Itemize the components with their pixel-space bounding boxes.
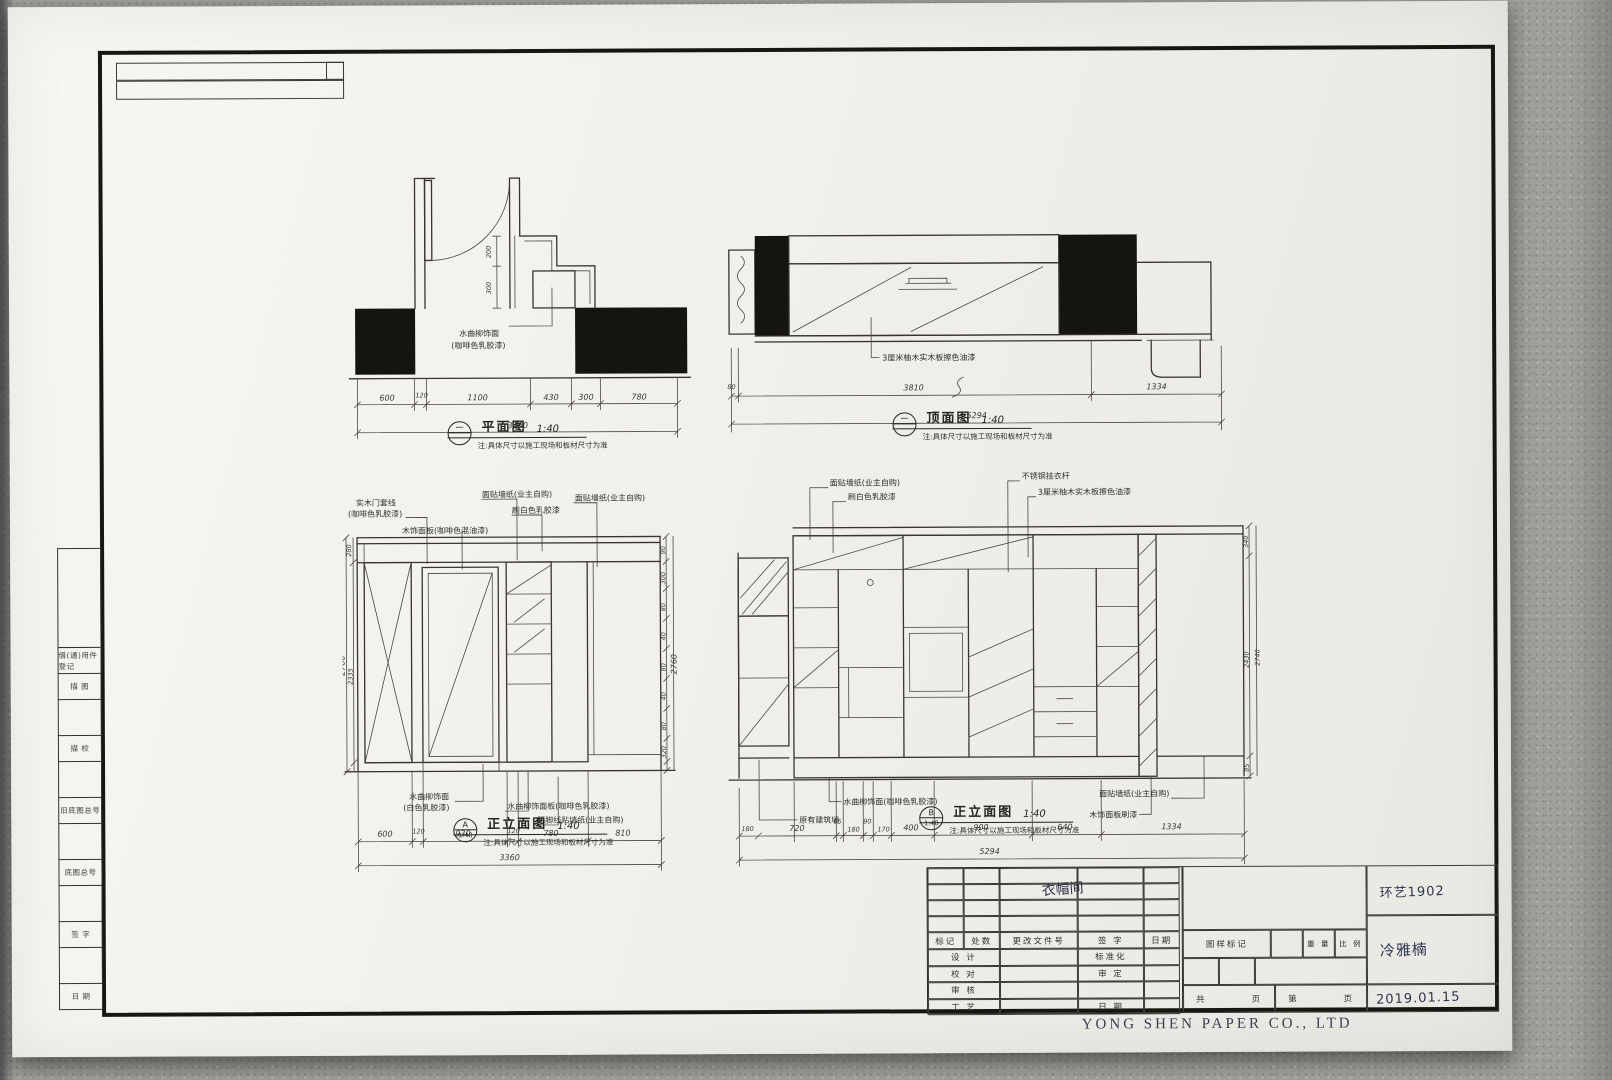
table-cell: 日 期 — [1078, 998, 1144, 1015]
elev-b-dim: 400 — [903, 823, 918, 832]
table-cell — [1183, 958, 1219, 985]
ceiling-dim: 80 — [727, 383, 735, 391]
table-cell — [964, 916, 1000, 932]
table-cell — [1144, 948, 1180, 965]
ceiling-material-label: 3厘米柚木实木板擦色油漆 — [882, 352, 975, 362]
revision-strip-divider — [326, 62, 344, 80]
table-cell — [1078, 899, 1144, 915]
elev-b-dim: 90 — [863, 818, 871, 826]
elevation-b-scale: 1:40 — [1023, 809, 1046, 820]
table-cell — [1271, 930, 1303, 958]
elevation-b-note: 注:具体尺寸以施工现场和板材尺寸为准 — [949, 825, 1079, 837]
table-cell — [1144, 965, 1180, 982]
elev-a-vdim: 90 — [659, 546, 667, 554]
handwritten-author: 冷雅楠 — [1379, 938, 1428, 961]
ceiling-reference-bubble: 一 — [892, 412, 916, 436]
table-cell: 设 计 — [928, 949, 1000, 966]
handwritten-room-name: 衣帽间 — [1041, 877, 1084, 900]
elev-b-vdim: 85 — [1243, 764, 1251, 772]
elev-a-label: 面贴墙纸(业主自购) — [482, 489, 552, 499]
table-cell: 校 对 — [928, 965, 1000, 982]
elev-b-label: 木饰面板刷漆 — [1089, 809, 1137, 819]
table-cell — [1078, 981, 1144, 998]
elev-b-vdim: 340 — [1242, 535, 1250, 547]
pages-label: 第 — [1288, 993, 1299, 1005]
ceiling-dim: 1334 — [1146, 382, 1166, 391]
table-cell: 审 定 — [1078, 965, 1144, 982]
elev-a-vdim: 2335 — [347, 668, 355, 685]
margin-empty-box — [57, 548, 101, 648]
table-cell — [1000, 916, 1078, 932]
bubble-sub — [449, 433, 471, 444]
plan-dim: 120 — [415, 391, 427, 399]
table-cell — [1144, 998, 1180, 1015]
elev-b-dim: 170 — [877, 825, 889, 833]
paper-sheet: 借(通)用件登记 描 图 描 校 旧底图总号 底图总号 签 字 日 期 200 … — [8, 1, 1513, 1058]
elev-b-dim: 1334 — [1161, 822, 1181, 831]
drawing-mark-label: 图样标记 — [1183, 930, 1271, 958]
table-cell — [1255, 957, 1367, 984]
margin-empty-box — [58, 762, 102, 798]
elev-b-label: 面贴墙纸(业主自购) — [1099, 788, 1169, 798]
table-cell — [1143, 867, 1179, 883]
elev-a-label: 实木门套线 — [356, 498, 396, 508]
elev-a-vdim: 280 — [345, 544, 353, 556]
table-cell — [1000, 900, 1078, 916]
pages-no-cell: 第 页 — [1275, 984, 1367, 1012]
plan-dim: 430 — [543, 393, 558, 402]
table-cell — [1000, 998, 1078, 1015]
elev-a-vdim: 80 — [660, 663, 668, 671]
margin-label: 签 字 — [59, 922, 103, 948]
paper-manufacturer-text: YONG SHEN PAPER CO., LTD — [812, 1014, 1612, 1035]
margin-label: 旧底图总号 — [58, 798, 102, 824]
elev-b-label: 3厘米柚木实木板擦色油漆 — [1038, 486, 1131, 496]
plan-dim: 780 — [631, 392, 646, 401]
table-cell: 标准化 — [1078, 948, 1144, 965]
date-cell: 2019.01.15 — [1367, 984, 1499, 1013]
plan-note: 注:具体尺寸以施工现场和板材尺寸为准 — [478, 440, 608, 452]
elev-a-vdim: 80 — [660, 722, 668, 730]
table-cell — [928, 916, 964, 932]
left-margin-strip: 借(通)用件登记 描 图 描 校 旧底图总号 底图总号 签 字 日 期 — [57, 548, 103, 1010]
pages-label: 共 — [1196, 993, 1207, 1005]
table-cell — [1000, 949, 1078, 966]
table-cell: 工 艺 — [928, 998, 1000, 1015]
elev-a-label: 木饰面板(咖啡色混油漆) — [402, 525, 488, 535]
ceiling-scale: 1:40 — [982, 415, 1005, 426]
elev-a-dim: 600 — [377, 830, 392, 839]
elev-a-vdim: 300 — [659, 572, 667, 584]
table-header-cell: 更改文件号 — [1000, 932, 1078, 949]
elevation-a-title: 正立面图 — [487, 813, 547, 832]
bubble-sub — [894, 424, 916, 435]
table-header-cell: 标记 — [928, 932, 964, 949]
elev-a-label: 刷白色乳胶漆 — [512, 505, 560, 515]
plan-material-label: 水曲柳饰面 — [459, 328, 499, 338]
elevation-a-note: 注:具体尺寸以施工现场和板材尺寸为准 — [483, 837, 613, 849]
elev-b-vdim: 2430 — [1243, 651, 1251, 668]
handwritten-class: 环艺1902 — [1379, 879, 1445, 901]
elev-a-vdim: 80 — [659, 603, 667, 611]
pages-total-cell: 共 页 — [1183, 985, 1275, 1013]
elev-b-label: 面贴墙纸(业主自购) — [830, 477, 900, 487]
margin-empty-box — [59, 948, 103, 984]
table-cell — [964, 900, 1000, 916]
elevation-b-bubble: B 1:40 — [919, 806, 943, 830]
elev-b-dim: 180 — [847, 826, 859, 834]
elevation-a-bubble: A 1:40 — [453, 818, 477, 842]
table-cell — [1000, 965, 1078, 982]
elev-a-label: 水曲柳饰面板(咖啡色乳胶漆) — [507, 801, 609, 811]
table-cell: 审 核 — [928, 982, 1000, 999]
title-block-main: 图样标记 重 量 比 例 共 页 第 页 环艺1902 冷雅楠 2019.01.… — [1182, 865, 1499, 1013]
plan-scale: 1:40 — [537, 424, 560, 435]
table-cell — [1219, 958, 1255, 985]
revision-strip-1 — [116, 62, 344, 81]
margin-label: 底图总号 — [58, 860, 102, 886]
table-cell — [1144, 883, 1180, 899]
bubble-sub: 1:40 — [920, 818, 942, 829]
table-cell — [1182, 865, 1366, 930]
table-cell — [1000, 982, 1078, 999]
elevation-a-scale: 1:40 — [557, 821, 580, 832]
plan-material-label: (咖啡色乳胶漆) — [451, 340, 505, 350]
elevation-b-title: 正立面图 — [953, 801, 1013, 820]
elev-a-dim: 120 — [412, 827, 424, 835]
elev-b-dim: 65 — [833, 818, 841, 826]
margin-label: 日 期 — [59, 984, 103, 1010]
table-cell — [1144, 981, 1180, 998]
margin-empty-box — [58, 824, 102, 860]
elev-b-label: 不锈钢挂衣杆 — [1022, 471, 1070, 481]
elev-a-vdim: 40 — [660, 692, 668, 700]
plan-vdim: 300 — [485, 282, 493, 294]
bubble-letter: B — [920, 807, 942, 818]
table-cell — [1078, 915, 1144, 931]
table-cell — [964, 884, 1000, 900]
scale-label: 比 例 — [1335, 929, 1367, 957]
elev-a-vdim: 320 — [660, 746, 668, 758]
plan-dim: 600 — [379, 394, 394, 403]
photo-of-drawing-sheet: { "sheet": { "company": "YONG SHEN PAPER… — [0, 0, 1612, 1080]
table-cell — [928, 900, 964, 916]
table-cell — [927, 868, 963, 884]
margin-label: 描 图 — [58, 674, 102, 700]
plan-caption: 一 平面图 1:40 注:具体尺寸以施工现场和板材尺寸为准 — [448, 416, 608, 452]
elev-b-total-dim: 5294 — [979, 847, 999, 856]
elev-a-vtotal: 2760 — [670, 654, 679, 674]
elev-b-vtotal: 2740 — [1254, 649, 1262, 666]
elevation-b-caption: B 1:40 正立面图 1:40 注:具体尺寸以施工现场和板材尺寸为准 — [919, 801, 1079, 837]
pages-label: 页 — [1252, 993, 1263, 1005]
margin-empty-box — [59, 886, 103, 922]
elev-a-label: (白色乳胶漆) — [403, 802, 449, 812]
table-cell — [1078, 883, 1144, 899]
pages-label: 页 — [1344, 992, 1355, 1004]
elev-a-total-dim: 3360 — [499, 853, 519, 862]
class-cell: 环艺1902 — [1366, 865, 1498, 916]
elev-a-label: 面贴墙纸(业主自购) — [575, 493, 645, 503]
ceiling-dim: 3810 — [903, 383, 923, 392]
elevation-a-caption: A 1:40 正立面图 1:40 注:具体尺寸以施工现场和板材尺寸为准 — [453, 813, 613, 849]
plan-title: 平面图 — [482, 416, 527, 435]
elev-b-dim: 180 — [741, 825, 753, 833]
ceiling-caption: 一 顶面图 1:40 注:具体尺寸以施工现场和板材尺寸为准 — [892, 407, 1052, 443]
margin-empty-box — [58, 700, 102, 736]
table-cell — [963, 868, 999, 884]
bubble-letter: 一 — [449, 422, 471, 433]
table-cell — [928, 884, 964, 900]
plan-vdim: 200 — [485, 246, 493, 258]
margin-label: 借(通)用件登记 — [58, 648, 102, 674]
elev-a-dim: 810 — [615, 829, 630, 838]
elev-a-label: 水曲柳饰面 — [409, 791, 449, 801]
ceiling-note: 注:具体尺寸以施工现场和板材尺寸为准 — [923, 431, 1053, 443]
table-header-cell: 日期 — [1144, 931, 1180, 948]
ceiling-title: 顶面图 — [926, 407, 971, 426]
plan-dim: 300 — [578, 393, 593, 402]
handwritten-date: 2019.01.15 — [1376, 989, 1461, 1007]
elev-a-label: (咖啡色乳胶漆) — [348, 509, 402, 519]
elev-b-label: 刷白色乳胶漆 — [848, 491, 896, 501]
revision-strip-2 — [116, 80, 344, 100]
bubble-letter: 一 — [893, 413, 915, 424]
table-header-cell: 签 字 — [1078, 931, 1144, 948]
plan-reference-bubble: 一 — [448, 421, 472, 445]
table-cell — [1077, 867, 1143, 883]
margin-label: 描 校 — [58, 736, 102, 762]
elev-b-dim: 720 — [789, 824, 804, 833]
bubble-sub: 1:40 — [454, 830, 476, 841]
elev-a-vdim: 40 — [659, 632, 667, 640]
table-cell — [1144, 915, 1180, 931]
table-header-cell: 处数 — [964, 932, 1000, 949]
author-cell: 冷雅楠 — [1367, 915, 1499, 985]
plan-dim: 1100 — [467, 393, 487, 402]
bubble-letter: A — [454, 819, 476, 830]
weight-label: 重 量 — [1303, 929, 1335, 957]
table-cell — [1144, 899, 1180, 915]
